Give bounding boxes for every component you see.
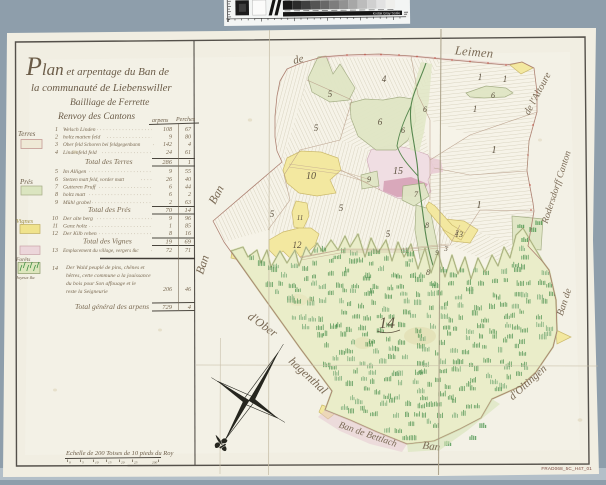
- svg-text:4: 4: [188, 141, 191, 148]
- svg-text:80: 80: [185, 135, 191, 141]
- svg-text:1: 1: [478, 72, 483, 82]
- svg-text:200: 200: [152, 461, 158, 465]
- svg-text:la communauté de Liebenswiller: la communauté de Liebenswiller: [31, 82, 172, 94]
- svg-text:13: 13: [52, 248, 58, 254]
- svg-text:8: 8: [425, 221, 429, 230]
- svg-text:9: 9: [169, 169, 172, 175]
- svg-text:10: 10: [52, 216, 58, 222]
- svg-text:Total des Prés: Total des Prés: [88, 205, 131, 214]
- svg-text:Kodak Gray Scale: Kodak Gray Scale: [373, 11, 400, 15]
- svg-text:5: 5: [55, 169, 58, 175]
- svg-text:55: 55: [185, 169, 191, 175]
- svg-text:85: 85: [185, 224, 191, 230]
- svg-text:6: 6: [169, 185, 172, 191]
- svg-text:Joyeux &c: Joyeux &c: [16, 275, 35, 280]
- svg-text:3: 3: [443, 245, 448, 253]
- svg-text:Bailliage de Ferrette: Bailliage de Ferrette: [70, 98, 149, 108]
- svg-text:9: 9: [367, 175, 371, 184]
- svg-text:1: 1: [55, 127, 58, 133]
- svg-text:2: 2: [188, 192, 191, 198]
- svg-text:du bois pour Son affouage et l: du bois pour Son affouage et le: [66, 280, 136, 287]
- svg-text:5: 5: [339, 203, 344, 213]
- svg-text:1: 1: [492, 145, 497, 156]
- svg-text:69: 69: [185, 239, 192, 246]
- svg-text:11: 11: [297, 214, 303, 222]
- svg-text:14: 14: [185, 207, 192, 214]
- svg-text:Stetzen matt feld, vorder matt: Stetzen matt feld, vorder matt: [63, 176, 125, 183]
- svg-text:5: 5: [270, 209, 275, 219]
- svg-text:26: 26: [166, 177, 172, 183]
- svg-text:Der alte berg: Der alte berg: [62, 216, 93, 222]
- svg-text:9: 9: [169, 216, 172, 222]
- svg-text:1: 1: [473, 104, 478, 114]
- svg-text:15: 15: [108, 461, 112, 465]
- svg-text:71: 71: [185, 248, 191, 254]
- svg-text:4: 4: [382, 74, 387, 84]
- svg-text:24: 24: [166, 149, 172, 156]
- svg-text:Prés: Prés: [19, 178, 33, 186]
- svg-text:4: 4: [55, 149, 58, 156]
- svg-text:6: 6: [378, 117, 383, 127]
- svg-text:142: 142: [163, 141, 172, 148]
- svg-text:reste la Seigneurie: reste la Seigneurie: [66, 289, 108, 295]
- svg-text:Gutteren Pruff: Gutteren Pruff: [63, 184, 97, 191]
- svg-text:1: 1: [503, 74, 508, 84]
- svg-text:Emplacement du village, verger: Emplacement du village, vergers &c: [62, 248, 139, 254]
- svg-text:Perches: Perches: [175, 117, 196, 123]
- svg-text:6: 6: [401, 126, 405, 135]
- svg-text:5: 5: [386, 229, 391, 239]
- svg-text:Im Alligen: Im Alligen: [62, 169, 87, 175]
- svg-text:9: 9: [55, 200, 58, 206]
- svg-text:Ober feld Schoren bei feldgege: Ober feld Schoren bei feldgegenbann: [63, 141, 141, 148]
- svg-text:Renvoy des Cantons: Renvoy des Cantons: [57, 112, 135, 122]
- svg-text:Lindenfeld feld: Lindenfeld feld: [62, 149, 97, 156]
- svg-text:46: 46: [185, 286, 191, 293]
- svg-text:9: 9: [435, 249, 439, 257]
- svg-text:Der Wald peuplé de pins, chêne: Der Wald peuplé de pins, chênes et: [65, 265, 145, 271]
- svg-text:2: 2: [55, 135, 58, 141]
- svg-text:8: 8: [426, 268, 430, 277]
- svg-text:25: 25: [134, 461, 138, 465]
- svg-text:Total général des arpens: Total général des arpens: [75, 302, 149, 311]
- svg-text:6: 6: [423, 105, 427, 114]
- svg-text:206: 206: [163, 287, 172, 293]
- svg-text:286: 286: [162, 159, 173, 166]
- svg-text:3: 3: [54, 142, 58, 148]
- svg-text:1: 1: [169, 224, 172, 230]
- svg-text:2: 2: [455, 229, 459, 237]
- svg-text:15: 15: [393, 166, 403, 177]
- svg-text:1: 1: [477, 200, 482, 211]
- svg-text:16: 16: [185, 231, 191, 237]
- svg-text:8: 8: [55, 192, 58, 198]
- svg-text:67: 67: [185, 127, 192, 133]
- svg-text:Mühl grabel: Mühl grabel: [62, 200, 91, 206]
- svg-text:10: 10: [95, 461, 99, 465]
- svg-text:Terres: Terres: [18, 130, 36, 138]
- svg-text:Welsch Linden: Welsch Linden: [63, 127, 96, 133]
- svg-text:11: 11: [52, 224, 58, 230]
- svg-text:14: 14: [379, 315, 395, 332]
- svg-text:6: 6: [491, 91, 495, 100]
- svg-text:6: 6: [55, 177, 58, 183]
- svg-text:arpens: arpens: [152, 118, 169, 124]
- svg-text:5: 5: [82, 461, 84, 465]
- svg-text:1: 1: [188, 159, 191, 166]
- svg-text:2: 2: [169, 200, 172, 206]
- svg-text:44: 44: [185, 184, 191, 191]
- svg-text:70: 70: [166, 207, 173, 214]
- svg-text:Total des Vignes: Total des Vignes: [83, 237, 132, 246]
- svg-text:Ganz holtz: Ganz holtz: [63, 224, 88, 230]
- svg-text:61: 61: [185, 150, 191, 156]
- svg-text:5: 5: [314, 123, 319, 133]
- svg-text:holtz matt: holtz matt: [63, 192, 86, 198]
- svg-text:Total des Terres: Total des Terres: [85, 157, 133, 166]
- svg-text:Forêts: Forêts: [15, 257, 30, 263]
- svg-text:Vignes: Vignes: [16, 218, 34, 225]
- svg-text:FRAD068_5C_H47_01: FRAD068_5C_H47_01: [541, 466, 592, 471]
- svg-text:96: 96: [185, 216, 191, 222]
- svg-text:10: 10: [306, 171, 316, 182]
- svg-text:12: 12: [293, 240, 303, 250]
- svg-text:9: 9: [169, 135, 172, 141]
- svg-text:40: 40: [185, 176, 191, 183]
- svg-text:holtz matten feld: holtz matten feld: [63, 134, 100, 141]
- svg-text:8: 8: [169, 231, 172, 237]
- svg-text:Echelle de 200 Toises de 10 pi: Echelle de 200 Toises de 10 pieds du Roy: [65, 450, 173, 457]
- svg-text:20: 20: [121, 461, 125, 465]
- svg-text:108: 108: [163, 127, 172, 133]
- svg-text:0: 0: [69, 461, 71, 465]
- svg-text:19: 19: [166, 239, 173, 246]
- svg-text:729: 729: [162, 304, 173, 311]
- svg-text:72: 72: [166, 248, 172, 254]
- svg-text:14: 14: [52, 265, 58, 272]
- svg-text:12: 12: [52, 231, 58, 237]
- svg-text:6: 6: [169, 192, 172, 198]
- svg-text:63: 63: [185, 200, 191, 206]
- svg-text:hêtres, cette commune a la jou: hêtres, cette commune a la jouissance: [66, 273, 151, 279]
- svg-text:5: 5: [328, 89, 333, 99]
